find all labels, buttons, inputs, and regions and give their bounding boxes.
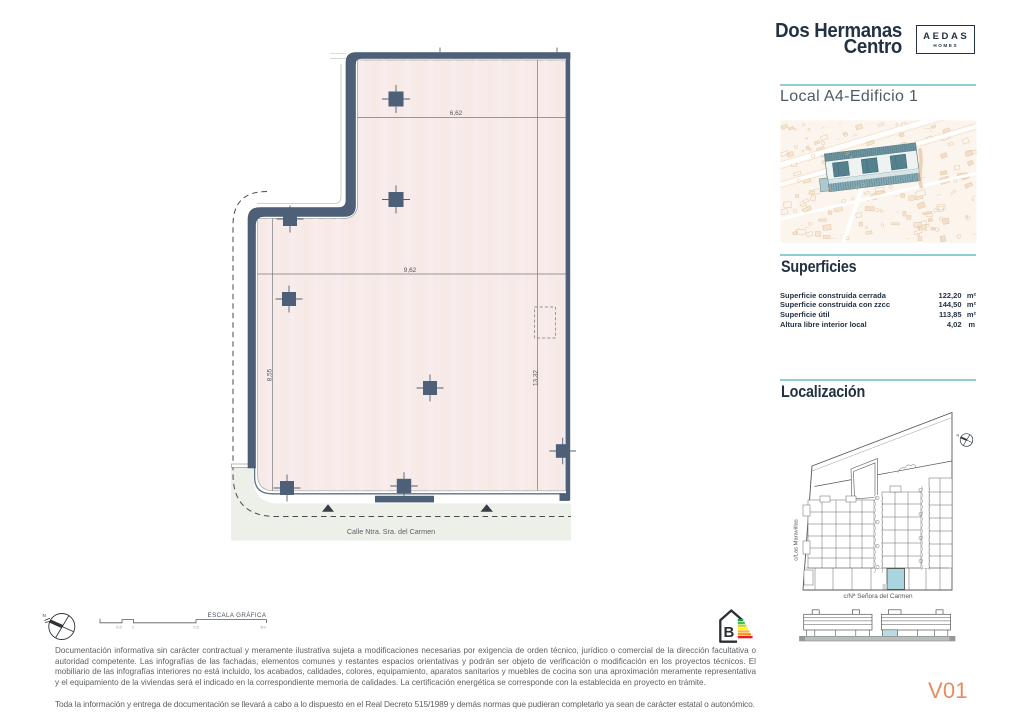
svg-text:6,62: 6,62	[450, 110, 463, 117]
svg-text:2,5: 2,5	[193, 625, 199, 630]
svg-text:ESCALA GRÁFICA: ESCALA GRÁFICA	[208, 612, 267, 619]
svg-text:B: B	[724, 624, 735, 641]
svg-text:c/Las Maravillas: c/Las Maravillas	[794, 519, 800, 561]
svg-text:1: 1	[132, 625, 135, 630]
svg-text:N: N	[43, 613, 46, 618]
svg-text:c/Nª Señora del Carmen: c/Nª Señora del Carmen	[843, 593, 913, 600]
svg-text:N: N	[957, 434, 960, 438]
svg-text:13,32: 13,32	[533, 370, 540, 386]
svg-text:8,55: 8,55	[266, 368, 273, 381]
svg-text:0,5: 0,5	[116, 625, 122, 630]
svg-text:Calle Ntra. Sra. del Carmen: Calle Ntra. Sra. del Carmen	[347, 527, 435, 536]
svg-text:5m: 5m	[260, 625, 266, 630]
svg-text:9,62: 9,62	[404, 267, 417, 274]
